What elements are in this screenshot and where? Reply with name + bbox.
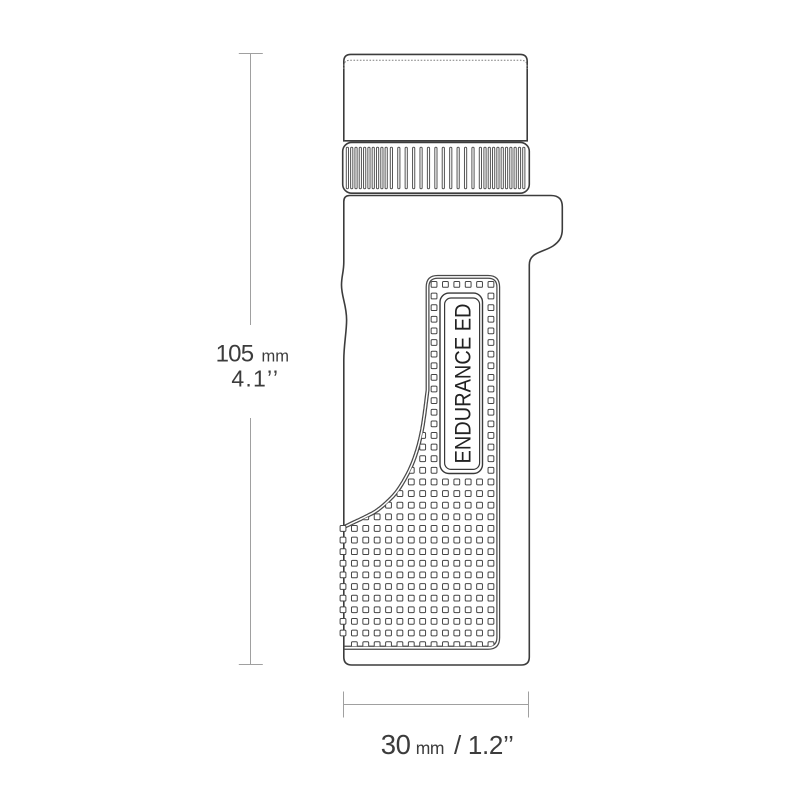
svg-text:105: 105 xyxy=(216,341,254,368)
svg-text:mm: mm xyxy=(262,348,290,366)
svg-text:ENDURANCE ED: ENDURANCE ED xyxy=(450,304,475,464)
svg-text:4.1’’: 4.1’’ xyxy=(231,365,279,391)
svg-text:mm: mm xyxy=(416,738,444,758)
svg-text:/ 1.2’’: / 1.2’’ xyxy=(454,730,514,760)
svg-text:30: 30 xyxy=(381,729,411,760)
